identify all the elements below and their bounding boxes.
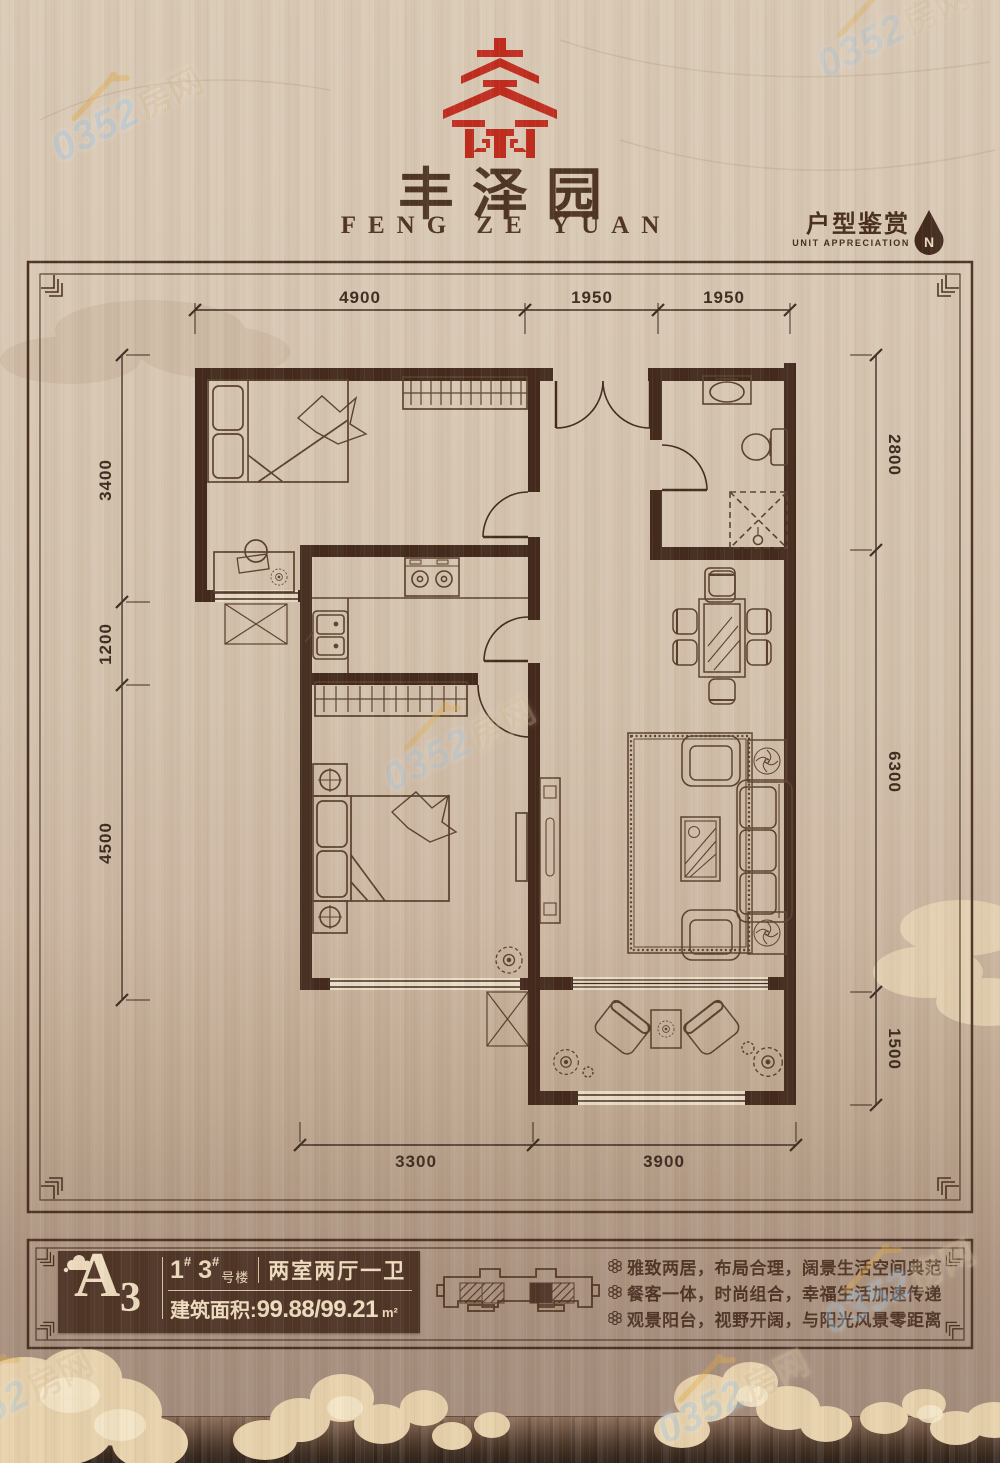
- feature-text: 观景阳台，视野开阔，与阳光风景零距离: [627, 1306, 942, 1331]
- balcony-plant-right-small: [742, 1042, 754, 1054]
- flower-bullet-icon: [608, 1259, 622, 1273]
- sofa: [737, 780, 792, 922]
- dim-label: 1500: [885, 1028, 904, 1070]
- living-room: [540, 733, 792, 960]
- bedroom1-door: [483, 492, 528, 537]
- dim-line-right: [850, 349, 882, 1111]
- feature-item: 餐客一体，时尚组合，幸福生活加速传递: [608, 1279, 964, 1305]
- window-bedroom2: [330, 978, 520, 990]
- lounge-chair-right: [682, 999, 742, 1057]
- desk: [214, 552, 294, 592]
- dim-label: 3300: [395, 1152, 437, 1171]
- wardrobe-1: [403, 377, 527, 409]
- building-and-layout: 1#3#号楼 两室两厅一卫: [170, 1252, 406, 1288]
- main-frame: [28, 262, 972, 1212]
- bedroom2-plant-icon: [496, 947, 522, 973]
- side-table-bottom: [748, 912, 786, 954]
- area-value: 99.88/99.21: [257, 1296, 378, 1324]
- bathroom: [703, 376, 787, 602]
- armchair-top: [682, 736, 740, 786]
- dim-label: 4900: [339, 288, 381, 307]
- unit-layout-label: 两室两厅一卫: [268, 1255, 406, 1285]
- dim-label: 3400: [96, 459, 115, 501]
- corner-knot-ornament: [41, 275, 62, 296]
- bedroom2-tv: [516, 813, 527, 881]
- nightstand-1: [313, 764, 347, 796]
- kitchen: [305, 558, 528, 673]
- side-table-top: [748, 740, 786, 782]
- dining-table: [699, 599, 745, 677]
- flower-bullet-icon: [608, 1311, 622, 1325]
- keyplan-unit-highlighted: [530, 1283, 552, 1303]
- building-number-1: 1: [170, 1256, 184, 1285]
- dim-labels: 4900 1950 1950 3400 1200 4500 2800 6300 …: [96, 288, 904, 1171]
- dim-line-bottom: [294, 1122, 802, 1151]
- feature-text: 雅致两居，布局合理，阔景生活空间典范: [627, 1254, 942, 1279]
- bed-double-1: [208, 380, 366, 482]
- balcony-plant-left-small: [583, 1067, 593, 1077]
- bedroom2-door: [478, 685, 530, 737]
- shower-area: [730, 492, 787, 548]
- nightstand-2: [313, 901, 347, 933]
- keyplan-unit-hatched: [460, 1283, 482, 1303]
- feature-list: 雅致两居，布局合理，阔景生活空间典范 餐客一体，时尚组合，幸福生活加速传递 观景…: [608, 1253, 964, 1331]
- dim-line-left: [116, 349, 150, 1006]
- area-row: 建筑面积: 99.88/99.21 m²: [170, 1294, 398, 1324]
- area-label: 建筑面积:: [170, 1294, 257, 1323]
- dim-label: 1200: [96, 623, 115, 665]
- bed-double-2: [313, 792, 456, 901]
- kitchen-door: [484, 617, 528, 661]
- unit-code-letter: A: [74, 1243, 120, 1307]
- unit-code-number: 3: [120, 1277, 141, 1319]
- bedroom1: [208, 377, 527, 644]
- wardrobe-2: [315, 682, 467, 716]
- bathroom-door: [662, 445, 707, 490]
- balcony-plant-right-icon: [754, 1048, 783, 1077]
- window-balcony: [578, 1091, 745, 1105]
- feature-item: 观景阳台，视野开阔，与阳光风景零距离: [608, 1305, 964, 1331]
- dining-area: [673, 571, 771, 704]
- divider: [162, 1257, 163, 1319]
- desk-plant-icon: [271, 569, 287, 585]
- tv-cabinet: [540, 778, 560, 923]
- shower-head-icon: [754, 527, 763, 545]
- desk-chair: [245, 540, 267, 562]
- hash-sup: #: [212, 1254, 219, 1269]
- dim-label: 3900: [643, 1152, 685, 1171]
- building-suffix: 号楼: [221, 1267, 249, 1286]
- ac-platform-2: [487, 992, 528, 1046]
- flower-bullet-icon: [608, 1285, 622, 1299]
- balcony-table: [651, 1010, 681, 1048]
- dim-line-top: [189, 303, 796, 334]
- balcony-plant-left-icon: [554, 1050, 579, 1075]
- lounge-chair-left: [592, 999, 652, 1057]
- dim-label: 2800: [885, 434, 904, 476]
- dim-label: 1950: [571, 288, 613, 307]
- area-unit: m²: [382, 1305, 398, 1320]
- dim-label: 1950: [703, 288, 745, 307]
- building-key-plan: [434, 1257, 602, 1331]
- floorplan-poster: 丰泽园 FENG ZE YUAN 户型鉴赏 UNIT APPRECIATION …: [0, 0, 1000, 1463]
- unit-info-panel: A 3 1#3#号楼 两室两厅一卫 建筑面积: 99.88/99.21 m²: [58, 1251, 420, 1333]
- balcony-slider-window: [573, 977, 768, 990]
- keyplan-unit-hatched: [482, 1283, 504, 1303]
- keyplan-unit-hatched: [552, 1283, 574, 1303]
- walls: [195, 363, 796, 1105]
- coffee-table: [681, 817, 720, 881]
- ac-platform-1: [225, 604, 287, 644]
- feature-item: 雅致两居，布局合理，阔景生活空间典范: [608, 1253, 964, 1279]
- floorplan: 4900 1950 1950 3400 1200 4500 2800 6300 …: [0, 0, 1000, 1463]
- dim-label: 6300: [885, 751, 904, 793]
- entry-double-door: [556, 381, 650, 428]
- dim-label: 4500: [96, 822, 115, 864]
- dining-chairs: [673, 571, 771, 704]
- stove-icon: [405, 558, 459, 596]
- building-number-2: 3: [198, 1256, 212, 1285]
- toilet-icon: [742, 429, 787, 465]
- divider: [168, 1290, 412, 1291]
- bedroom2: [313, 682, 527, 973]
- divider: [258, 1257, 259, 1283]
- hash-sup: #: [184, 1254, 191, 1269]
- feature-text: 餐客一体，时尚组合，幸福生活加速传递: [627, 1280, 942, 1305]
